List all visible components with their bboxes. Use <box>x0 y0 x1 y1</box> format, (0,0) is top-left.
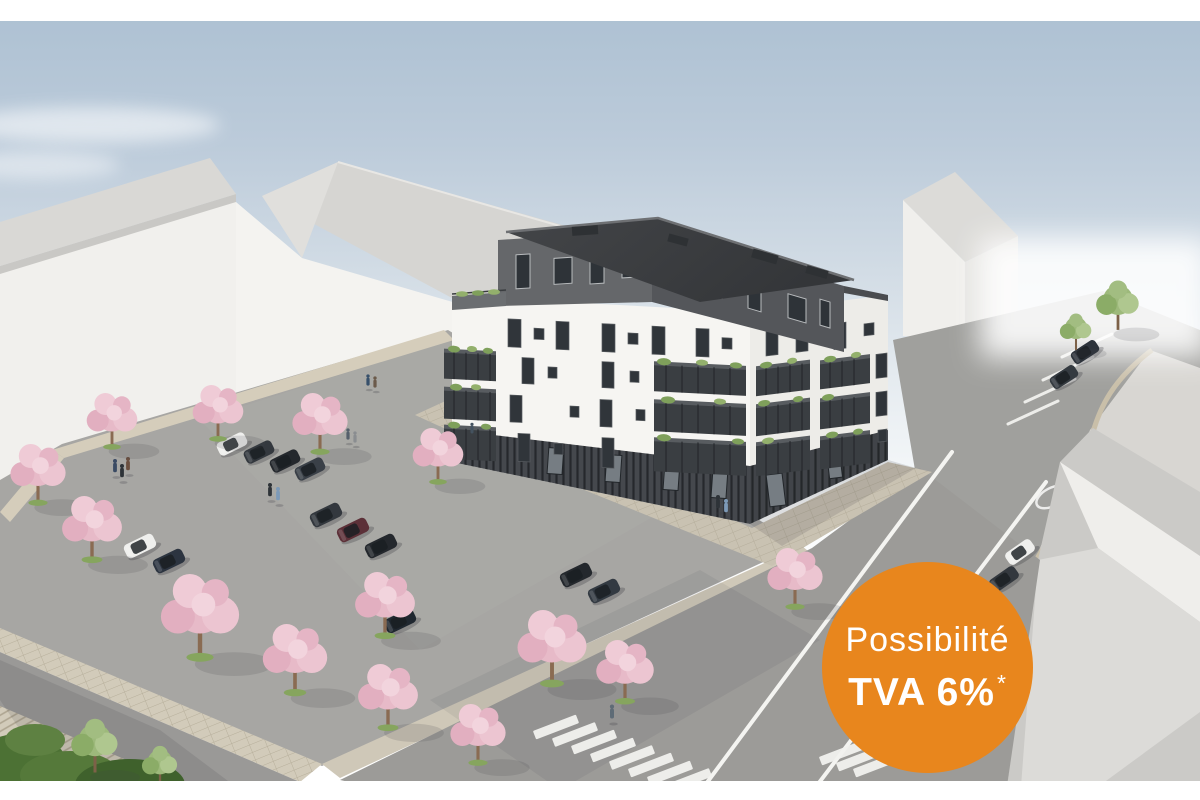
badge-footnote-marker: * <box>997 670 1007 696</box>
badge-line1: Possibilité <box>845 620 1009 660</box>
fog <box>980 238 1200 358</box>
balcony <box>756 432 810 476</box>
tva-badge: Possibilité TVA 6%* <box>822 562 1033 773</box>
rendering-image: Possibilité TVA 6%* <box>0 0 1200 800</box>
balcony <box>444 345 496 382</box>
bottom-margin <box>0 781 1200 800</box>
top-margin <box>0 0 1200 21</box>
badge-line2: TVA 6%* <box>848 660 1007 716</box>
balcony <box>820 427 870 469</box>
balcony <box>654 357 746 396</box>
